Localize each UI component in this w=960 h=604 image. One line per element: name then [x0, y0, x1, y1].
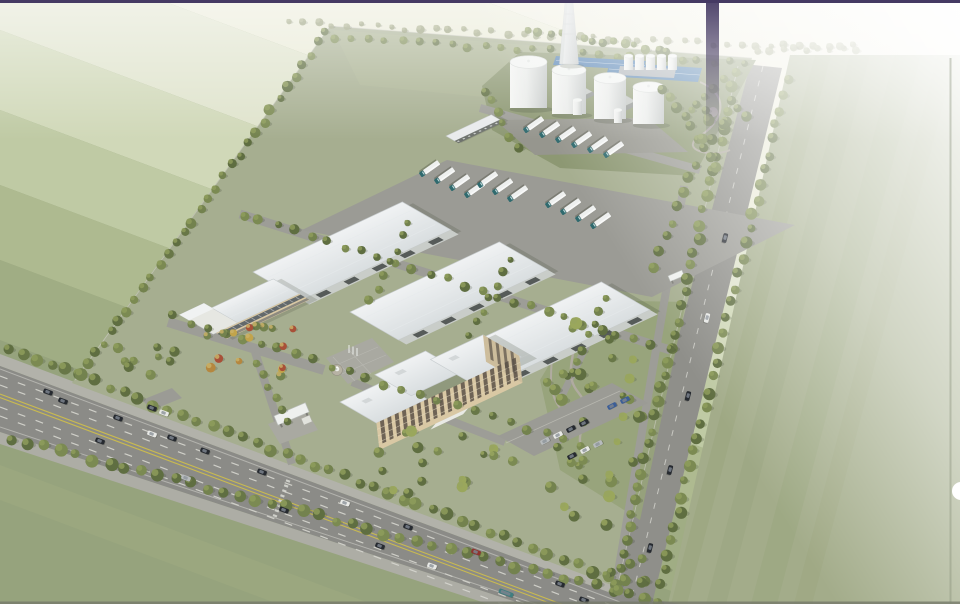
- haze: [0, 0, 960, 604]
- top-right-haze: [0, 0, 960, 604]
- right-edge-line: [950, 58, 952, 604]
- aerial-site-rendering: [0, 0, 960, 604]
- top-border-notch-artifact: [706, 3, 719, 145]
- rendering-canvas: [0, 0, 960, 604]
- top-border: [0, 0, 960, 3]
